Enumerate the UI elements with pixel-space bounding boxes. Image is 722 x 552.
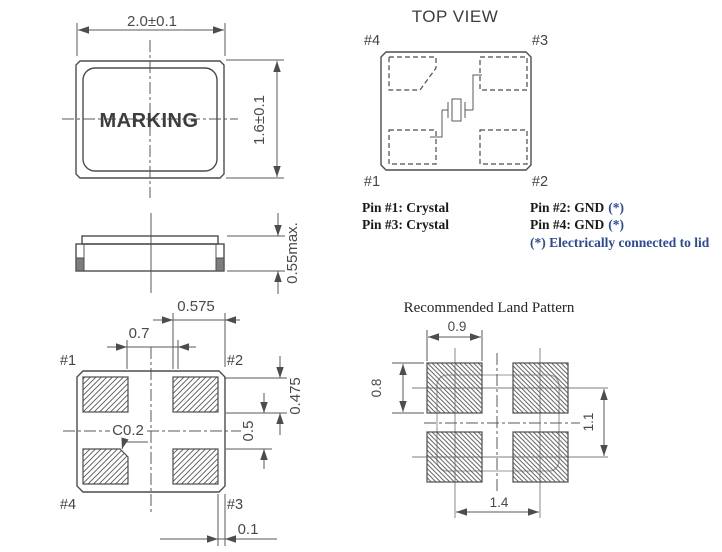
- pad-width-dimension: 0.9: [427, 319, 482, 361]
- edge-margin-dimension: 0.1: [160, 494, 277, 546]
- terminal-right: [216, 258, 224, 271]
- land-pattern-title: Recommended Land Pattern: [404, 300, 575, 316]
- pin-label-4: #4: [60, 497, 76, 513]
- vertical-pitch-dimension: 1.1: [581, 389, 604, 456]
- pin-label-4: #4: [364, 33, 380, 49]
- pad-2: [173, 377, 218, 412]
- pin2-star: (*): [608, 200, 624, 215]
- pin2-assignment: Pin #2: GND(*): [530, 200, 624, 215]
- land-pad-tl: [427, 363, 482, 413]
- height-dim-label: 1.6±0.1: [251, 95, 268, 145]
- pad-width-label: 0.9: [448, 319, 467, 334]
- pad-4-chamfered: [83, 449, 128, 484]
- top-view-title: TOP VIEW: [412, 7, 499, 26]
- horizontal-pitch-label: 1.4: [490, 495, 509, 510]
- chamfer-label: C0.2: [112, 422, 144, 439]
- datasheet-drawing-page: MARKING 2.0±0.1 1.6±0.1 0.55max. TO: [0, 0, 722, 552]
- lid: [82, 236, 218, 244]
- pin4-assignment: Pin #4: GND(*): [530, 217, 624, 232]
- package-outline: [381, 52, 531, 170]
- terminal-seams: [84, 244, 216, 258]
- edge-margin-label: 0.1: [238, 521, 259, 538]
- pin-label-2: #2: [227, 353, 243, 369]
- pin1-assignment: Pin #1: Crystal: [362, 200, 449, 215]
- pin-label-3: #3: [227, 497, 243, 513]
- thickness-dim-label: 0.55max.: [284, 222, 301, 284]
- width-dimension: 2.0±0.1: [77, 13, 225, 56]
- pad-height-label: 0.475: [287, 377, 304, 415]
- lid-footnote: (*) Electrically connected to lid: [530, 235, 710, 250]
- front-view-drawing: MARKING 2.0±0.1 1.6±0.1: [62, 13, 284, 198]
- pad-vgap-label: 0.5: [240, 421, 257, 442]
- chamfer-callout: C0.2: [110, 420, 148, 449]
- marking-text: MARKING: [99, 110, 198, 132]
- pad-3-hidden: [480, 57, 527, 90]
- pad-3: [173, 449, 218, 484]
- side-view-drawing: 0.55max.: [76, 213, 301, 294]
- pad-height-label: 0.8: [369, 379, 384, 398]
- vertical-pitch-label: 1.1: [581, 413, 596, 432]
- pin-label-2: #2: [532, 174, 548, 190]
- pad-2-hidden: [480, 130, 527, 164]
- land-pad-tr: [513, 363, 568, 413]
- body: [76, 244, 224, 271]
- width-dim-label: 2.0±0.1: [127, 13, 177, 30]
- pad-1-hidden: [389, 130, 436, 164]
- pin-label-1: #1: [60, 353, 76, 369]
- pin2-label: Pin #2: GND: [530, 200, 605, 215]
- pin-label-1: #1: [364, 174, 380, 190]
- pin4-label: Pin #4: GND: [530, 217, 605, 232]
- pad-4-hidden: [389, 57, 436, 90]
- land-pattern-drawing: Recommended Land Pattern 0.9 0.8 1.1: [369, 300, 608, 518]
- pin3-assignment: Pin #3: Crystal: [362, 217, 449, 232]
- bottom-view-drawing: #1 #2 #4 #3 0.575 0.7 0.475 0.5: [60, 298, 304, 546]
- thickness-dimension: 0.55max.: [227, 213, 301, 294]
- pad-1: [83, 377, 128, 412]
- top-view-drawing: TOP VIEW #4 #3 #1 #2: [364, 7, 548, 190]
- pin-assignment-text: Pin #1: Crystal Pin #3: Crystal Pin #2: …: [362, 200, 710, 250]
- terminal-left: [76, 258, 84, 271]
- package-drawing-svg: MARKING 2.0±0.1 1.6±0.1 0.55max. TO: [0, 0, 722, 552]
- pad-length-label: 0.575: [177, 298, 215, 315]
- land-pad-br: [513, 432, 568, 482]
- pin-label-3: #3: [532, 33, 548, 49]
- pin4-star: (*): [608, 217, 624, 232]
- horizontal-pitch-dimension: 1.4: [456, 495, 539, 512]
- crystal-symbol: [430, 75, 482, 137]
- land-pad-bl: [427, 432, 482, 482]
- pad-gap-label: 0.7: [129, 325, 150, 342]
